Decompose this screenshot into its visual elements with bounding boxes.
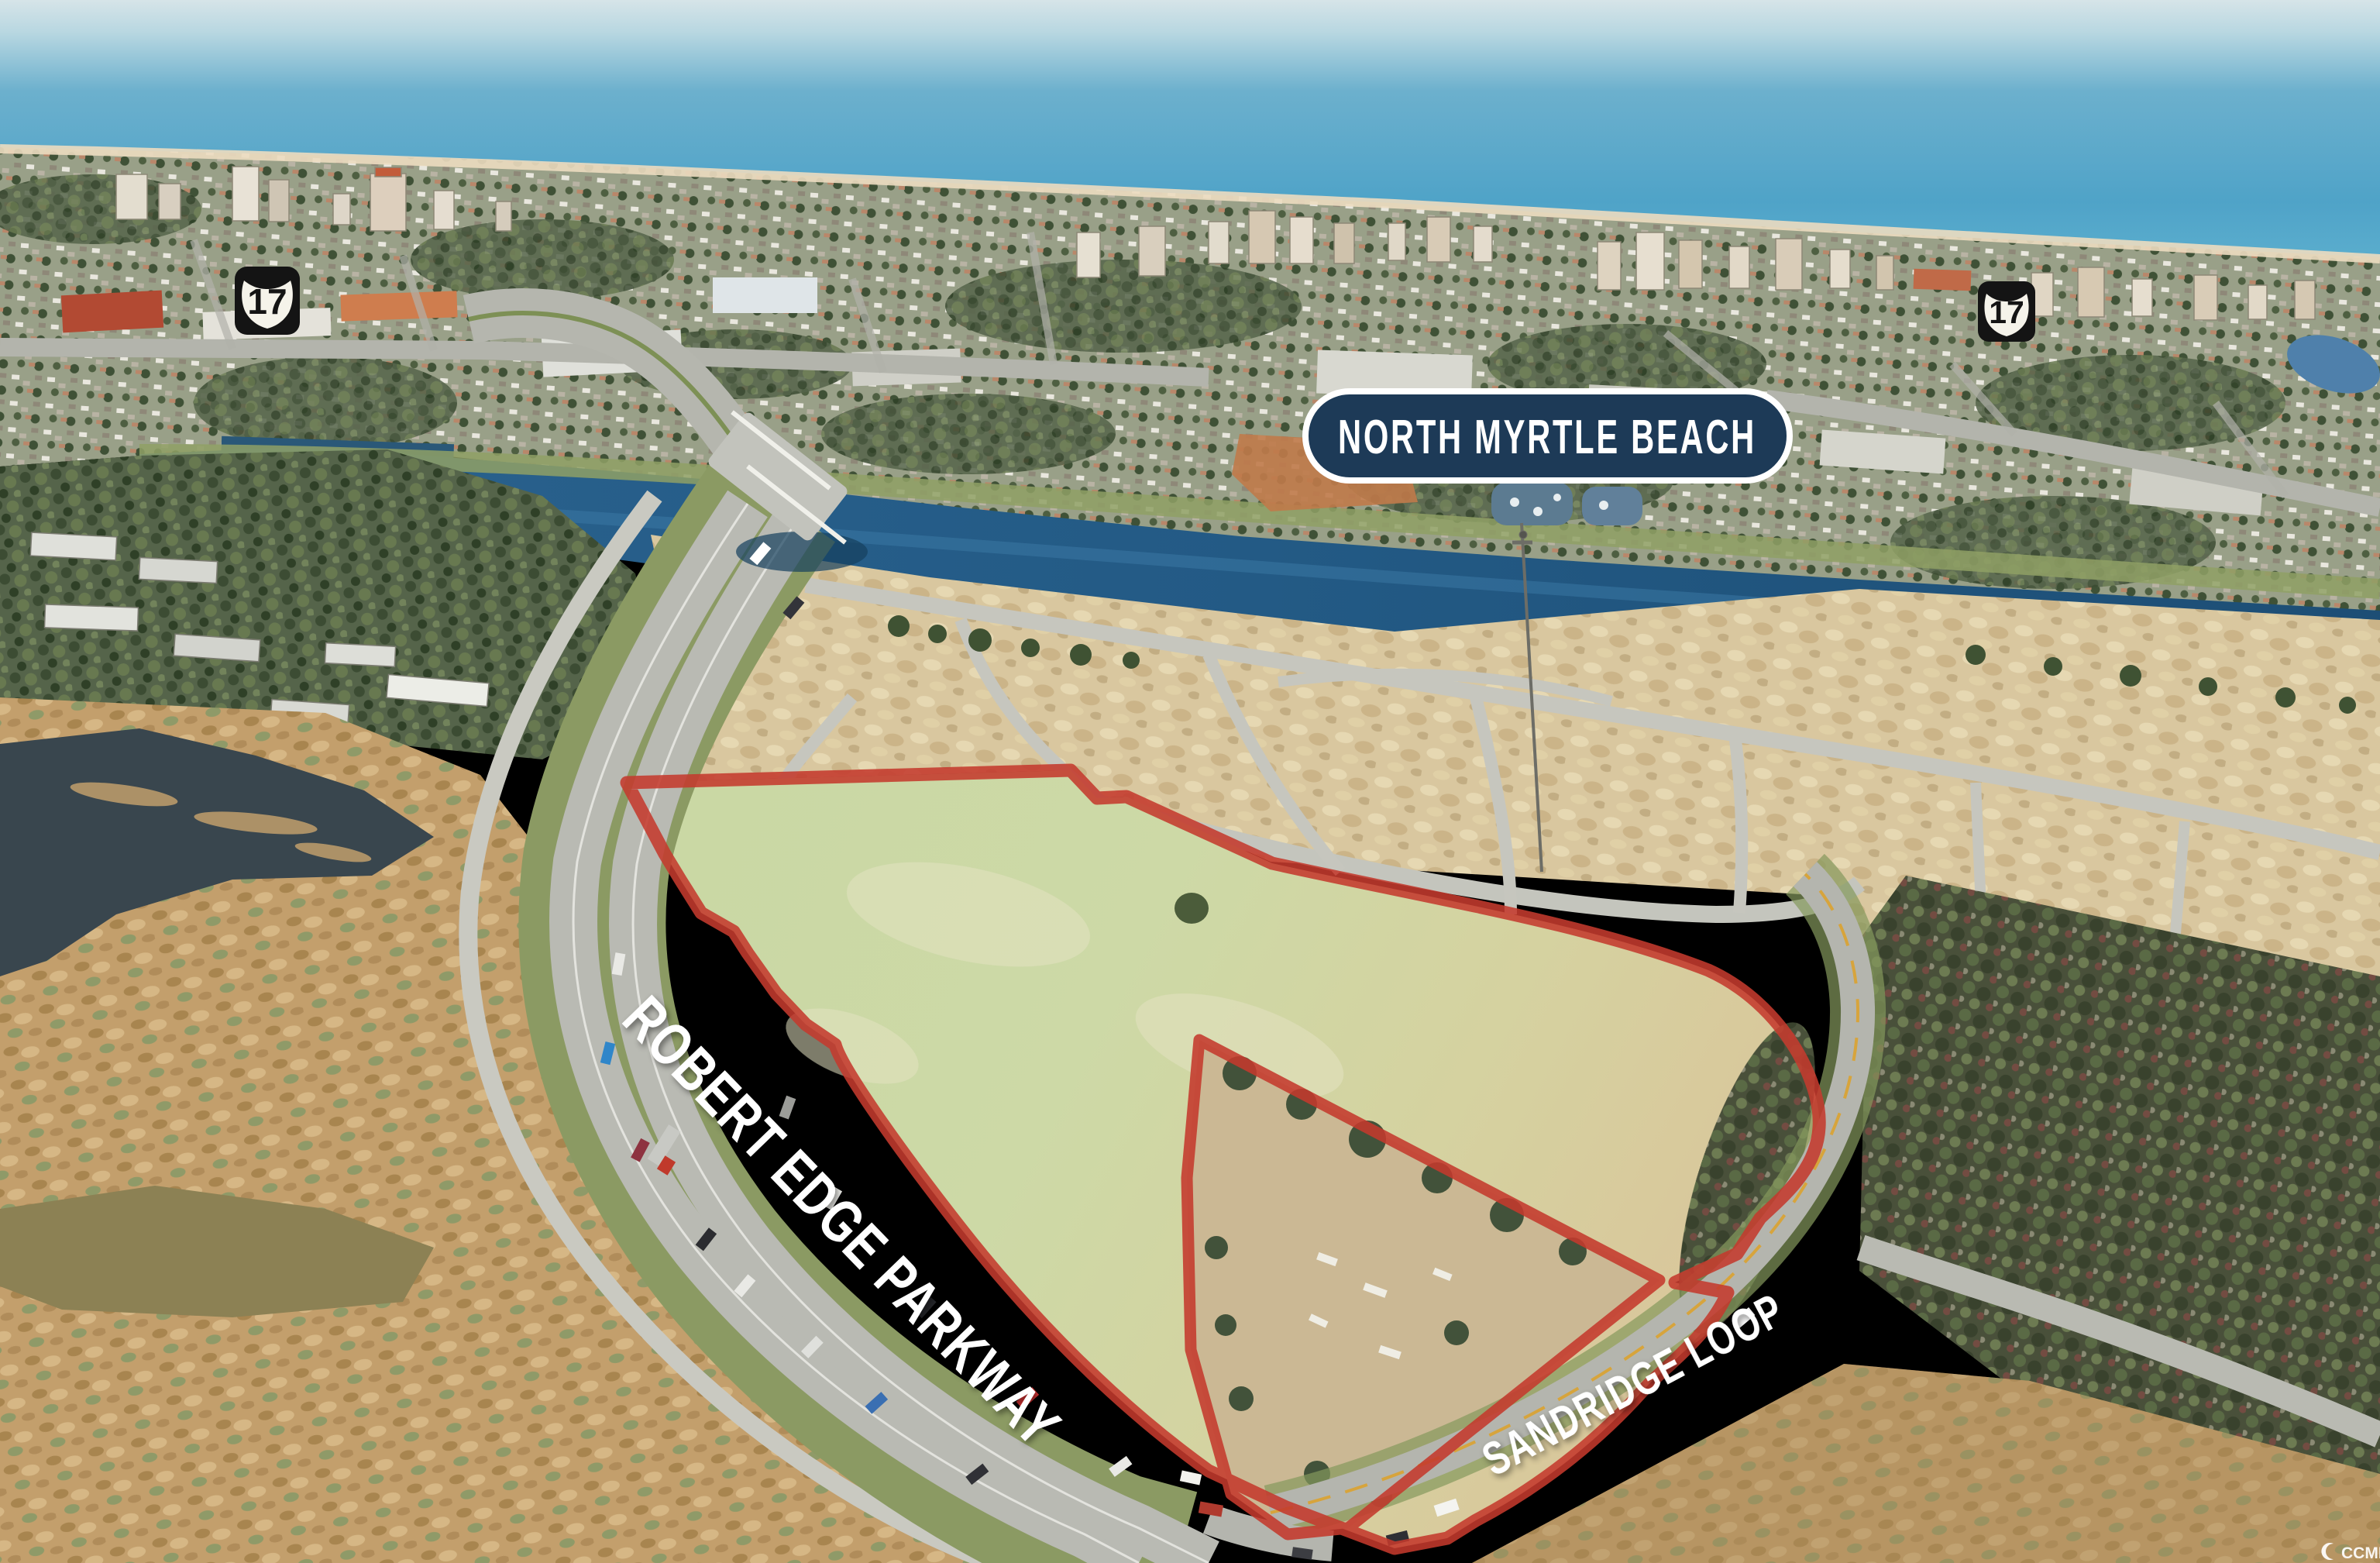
route-shield-west: 17 xyxy=(235,267,300,335)
treatment-ponds xyxy=(1491,482,1642,525)
aerial-scene: ROBERT EDGE PARKWAY SANDRIDGE LOOP NORTH… xyxy=(0,0,2380,1563)
route-shield-east: 17 xyxy=(1978,281,2035,342)
route-number: 17 xyxy=(247,281,287,322)
aerial-listing-photo: ROBERT EDGE PARKWAY SANDRIDGE LOOP NORTH… xyxy=(0,0,2380,1563)
lone-tree xyxy=(1175,893,1209,924)
city-badge: NORTH MYRTLE BEACH xyxy=(1305,391,1790,480)
route-number: 17 xyxy=(1989,294,2024,330)
watermark-text: CCMLS xyxy=(2341,1544,2380,1562)
badge-label: NORTH MYRTLE BEACH xyxy=(1338,411,1756,464)
